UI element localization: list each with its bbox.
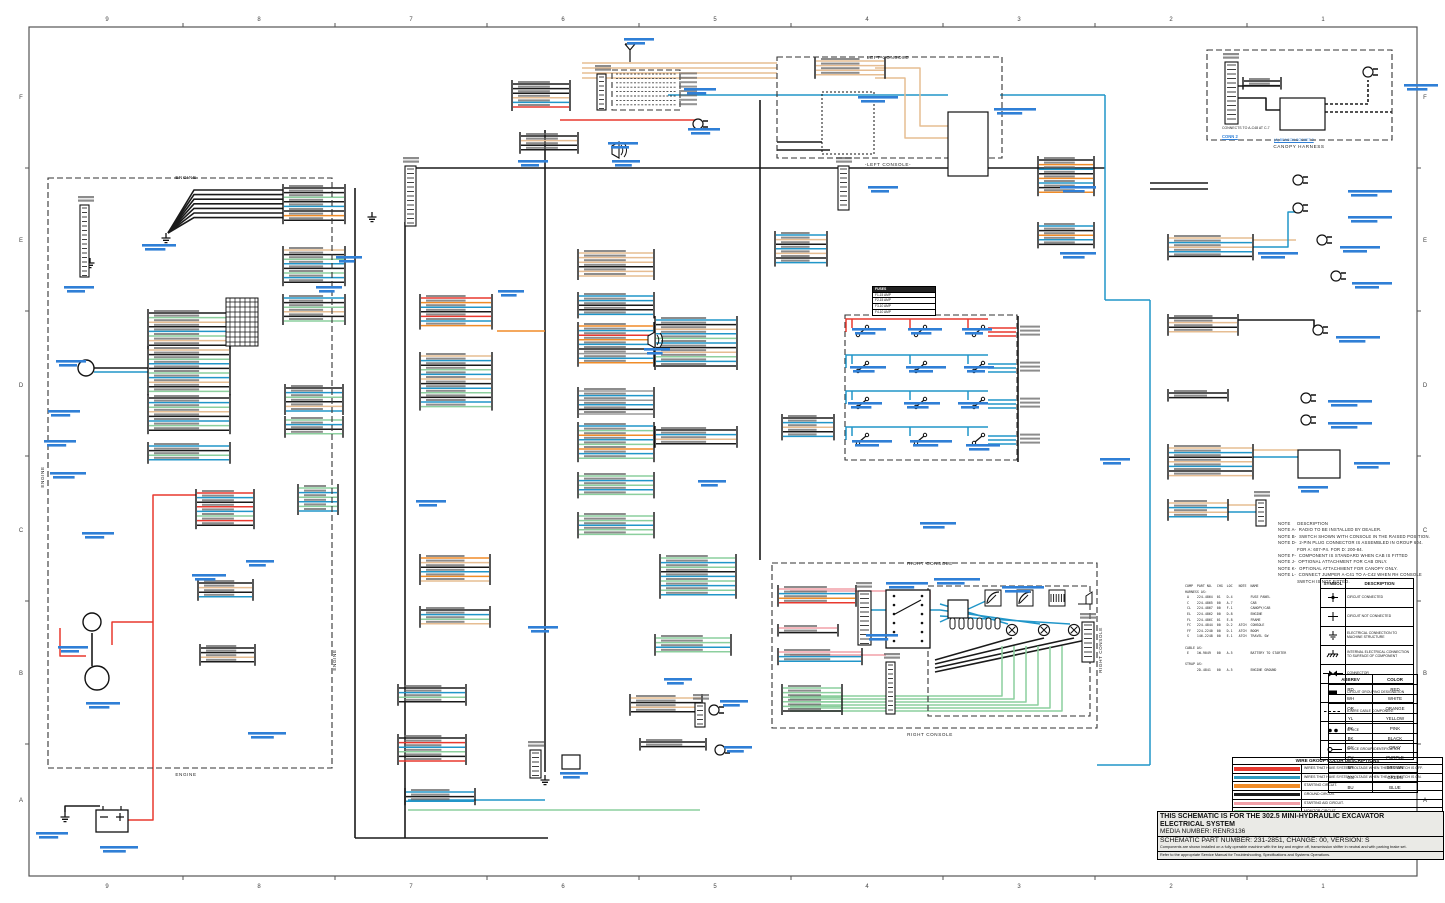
wire-label — [154, 395, 199, 397]
wire-label — [1174, 505, 1207, 507]
component-link[interactable] — [1100, 458, 1130, 461]
plug-prongs — [1341, 273, 1346, 279]
wire-label — [154, 409, 199, 411]
wire-label — [426, 353, 466, 355]
component-link[interactable] — [1328, 422, 1372, 425]
component-link[interactable] — [100, 846, 138, 849]
component-link[interactable] — [667, 682, 684, 685]
wire-label — [666, 573, 708, 575]
component-link[interactable] — [1354, 462, 1390, 465]
wire-label — [636, 695, 676, 697]
wire-label — [291, 422, 323, 424]
component-link[interactable] — [246, 560, 274, 563]
component-link[interactable] — [1328, 400, 1372, 403]
symbol-description: CIRCUIT CONNECTED — [1346, 588, 1414, 607]
component-link[interactable] — [937, 582, 965, 585]
wire-label — [1020, 434, 1040, 436]
wire-label — [584, 437, 626, 439]
component-link[interactable] — [908, 328, 942, 331]
symbol-table-row: CIRCUIT NOT CONNECTED — [1321, 607, 1414, 626]
component-link[interactable] — [56, 360, 86, 363]
wire-label — [788, 433, 817, 435]
wire-label — [291, 408, 323, 410]
wire-label — [426, 367, 466, 369]
pin-connector — [597, 74, 606, 110]
wire-label — [584, 428, 626, 430]
component-link[interactable] — [858, 96, 898, 99]
connector-name — [528, 741, 544, 743]
wire-label — [154, 404, 199, 406]
plug-prongs — [1311, 395, 1316, 401]
abbrev-code: YL — [1329, 714, 1373, 724]
component-link[interactable] — [1351, 220, 1377, 223]
component-link[interactable] — [145, 248, 165, 251]
component-link[interactable] — [518, 160, 548, 163]
wire-label — [784, 630, 817, 632]
wire-label — [518, 99, 550, 101]
component-link[interactable] — [192, 574, 226, 577]
component-link[interactable] — [687, 92, 706, 95]
component-link[interactable] — [923, 526, 945, 529]
component-link[interactable] — [103, 850, 126, 853]
wire-group-description: WIRES THAT HAVE SYSTEM VOLTAGE WHEN THE … — [1302, 765, 1443, 774]
wire-label — [1044, 162, 1075, 164]
wire-label — [154, 418, 199, 420]
component-link[interactable] — [61, 650, 79, 653]
component-link[interactable] — [1357, 466, 1379, 469]
component-link[interactable] — [47, 444, 66, 447]
component-link[interactable] — [1355, 286, 1379, 289]
abbrev-color: ORANGE — [1373, 704, 1418, 714]
component-link[interactable] — [997, 112, 1022, 115]
component-link[interactable] — [853, 370, 875, 373]
wire-label — [1020, 366, 1040, 368]
component-link[interactable] — [195, 578, 215, 581]
component-link[interactable] — [316, 286, 342, 289]
component-link[interactable] — [89, 706, 109, 709]
wire-label — [291, 390, 323, 392]
component-link[interactable] — [50, 472, 86, 475]
wire-label — [304, 490, 326, 492]
wire-label — [584, 332, 626, 334]
component-link[interactable] — [969, 448, 989, 451]
component-link[interactable] — [53, 476, 75, 479]
wire-group-description: STARTING CIRCUIT. — [1302, 782, 1443, 791]
component-link[interactable] — [560, 772, 588, 775]
component-link[interactable] — [967, 370, 985, 373]
abbrev-row: RD RED — [1329, 684, 1418, 694]
component-link[interactable] — [920, 522, 956, 525]
component-link[interactable] — [1103, 462, 1121, 465]
component-link[interactable] — [1339, 340, 1365, 343]
component-link[interactable] — [869, 638, 888, 641]
grid-column-label: 2 — [1169, 884, 1173, 890]
wire-run — [935, 640, 1086, 672]
wire-label — [584, 355, 626, 357]
wire-label — [784, 649, 830, 651]
component-link[interactable] — [67, 290, 85, 293]
wire-label — [426, 394, 466, 396]
wire-label — [202, 518, 234, 520]
grid-row-label: B — [19, 671, 23, 677]
component-link[interactable] — [848, 402, 882, 405]
component-link[interactable] — [909, 370, 933, 373]
component-link[interactable] — [251, 736, 274, 739]
component-link[interactable] — [64, 286, 94, 289]
component-link[interactable] — [961, 406, 979, 409]
wire-label — [289, 194, 323, 196]
component-link[interactable] — [850, 366, 886, 369]
switch-contact — [921, 640, 924, 643]
component-link[interactable] — [615, 164, 632, 167]
speaker-icon — [648, 332, 655, 348]
wire-label — [289, 304, 323, 306]
component-link[interactable] — [684, 88, 716, 91]
wire-label — [1174, 235, 1221, 237]
component-link[interactable] — [1002, 586, 1044, 589]
wire-label — [426, 404, 466, 406]
component-link[interactable] — [1331, 404, 1357, 407]
schematic-part-number: SCHEMATIC PART NUMBER: 231-2851, CHANGE:… — [1158, 836, 1443, 845]
wire-label — [154, 361, 199, 363]
component-link[interactable] — [871, 190, 889, 193]
component-link[interactable] — [86, 702, 120, 705]
component-link[interactable] — [664, 678, 692, 681]
region-label-engine: ENGINE — [40, 466, 45, 487]
component-link[interactable] — [852, 328, 886, 331]
grid-column-label: 7 — [409, 17, 413, 23]
component-link[interactable] — [964, 366, 994, 369]
wire-label — [661, 635, 703, 637]
symbol-table-row: ELECTRICAL CONNECTION TO MACHINE STRUCTU… — [1321, 626, 1414, 645]
wire-label — [666, 569, 708, 571]
component-link[interactable] — [521, 164, 539, 167]
component-link[interactable] — [1060, 252, 1096, 255]
wire-label — [584, 302, 626, 304]
wire-label — [584, 255, 626, 257]
component-link[interactable] — [336, 256, 362, 259]
wire-label — [202, 522, 234, 524]
component-link[interactable] — [698, 480, 726, 483]
component-link[interactable] — [51, 414, 70, 417]
schematic-sheet: { "sheet": { "grid_columns": ["9","8","7… — [0, 0, 1445, 903]
symbol-table-header-description: DESCRIPTION — [1346, 579, 1414, 589]
wire-run — [65, 806, 100, 812]
wire-label — [154, 365, 199, 367]
wire-label — [646, 739, 682, 741]
component-link[interactable] — [85, 536, 104, 539]
component-link[interactable] — [720, 700, 748, 703]
component-link[interactable] — [44, 440, 76, 443]
component-link[interactable] — [36, 832, 68, 835]
abbrev-code: RD — [1329, 684, 1373, 694]
abbrev-header: ABBREV — [1329, 675, 1373, 685]
wire-label — [154, 452, 199, 454]
wire-label — [1020, 402, 1040, 404]
connector-name — [403, 161, 419, 163]
component-link[interactable] — [855, 332, 875, 335]
component-link[interactable] — [1261, 256, 1285, 259]
connector-name — [595, 65, 611, 67]
key-switch — [886, 590, 930, 648]
wire-label — [426, 300, 466, 302]
component-link[interactable] — [886, 582, 928, 585]
wire-label — [661, 331, 706, 333]
wire-group-row: WIRES THAT HAVE SYSTEM VOLTAGE WHEN THE … — [1233, 765, 1443, 774]
wire-color-swatch — [1233, 773, 1302, 782]
component-link[interactable] — [691, 132, 710, 135]
wire-group-description: STARTING AID CIRCUIT. — [1302, 799, 1443, 808]
component-link[interactable] — [419, 504, 437, 507]
wire-label — [289, 300, 323, 302]
wire-label — [1044, 180, 1075, 182]
abbrev-code: PK — [1329, 723, 1373, 733]
wire-label — [289, 252, 323, 254]
component-link[interactable] — [531, 630, 549, 633]
component-link[interactable] — [1404, 84, 1438, 87]
component-link[interactable] — [904, 402, 940, 405]
wire-label — [1020, 398, 1040, 400]
component-link[interactable] — [962, 328, 992, 331]
wire-label — [1044, 223, 1075, 225]
component-link[interactable] — [934, 578, 980, 581]
ground-icon — [61, 812, 70, 822]
wire-label — [661, 363, 706, 365]
component-link[interactable] — [249, 564, 266, 567]
component-link[interactable] — [608, 142, 638, 145]
plug-connector-icon — [1363, 67, 1373, 77]
component-link[interactable] — [1343, 250, 1367, 253]
component-link[interactable] — [1063, 256, 1085, 259]
component-link[interactable] — [1258, 252, 1298, 255]
component-link[interactable] — [1348, 190, 1392, 193]
grid-column-label: 7 — [409, 884, 413, 890]
component-link[interactable] — [248, 732, 286, 735]
component-link[interactable] — [644, 348, 670, 351]
component-link[interactable] — [994, 108, 1036, 111]
wire-label — [661, 335, 706, 337]
wire-label — [584, 298, 626, 300]
wire-label — [1020, 406, 1040, 408]
component-link[interactable] — [1407, 88, 1427, 91]
component-link[interactable] — [647, 352, 663, 355]
component-link[interactable] — [1348, 216, 1392, 219]
wire-label — [411, 794, 450, 796]
wire-label — [304, 508, 326, 510]
wire-label — [661, 441, 706, 443]
plug-prongs — [719, 707, 724, 713]
wire-label — [584, 346, 626, 348]
wire-label — [661, 649, 703, 651]
component-link[interactable] — [1005, 590, 1030, 593]
component-link[interactable] — [319, 290, 335, 293]
beacon-socket-link[interactable]: (A) BEACON SOCKET 2 — [1274, 138, 1314, 142]
wire-label — [154, 379, 199, 381]
component-link[interactable] — [563, 776, 580, 779]
component-link[interactable] — [1331, 426, 1357, 429]
circuit-connected-icon — [1321, 588, 1346, 607]
component-link[interactable] — [1336, 336, 1380, 339]
region-label-engine: ENGINE — [175, 175, 196, 180]
component-link[interactable] — [627, 42, 645, 45]
component-link[interactable] — [910, 440, 952, 443]
wire-label — [291, 394, 323, 396]
wire-label — [289, 213, 323, 215]
component-link[interactable] — [852, 440, 892, 443]
wire-label — [289, 190, 323, 192]
component-link[interactable] — [907, 406, 929, 409]
component-link[interactable] — [1301, 490, 1319, 493]
wire-color-swatch — [1233, 782, 1302, 791]
wire-label — [526, 133, 558, 135]
component-link[interactable] — [958, 402, 988, 405]
wire-label — [679, 81, 697, 83]
connector-name — [884, 657, 900, 659]
component-link[interactable] — [1063, 190, 1085, 193]
wire-run — [112, 622, 153, 645]
abbrev-color: PINK — [1373, 723, 1418, 733]
plug-connector-icon — [715, 745, 725, 755]
component-link[interactable] — [339, 260, 355, 263]
switch-contact — [921, 622, 924, 625]
region-label-engine: ENGINE — [332, 649, 337, 670]
wire-label — [661, 317, 706, 319]
component-link[interactable] — [861, 100, 885, 103]
wire-label — [1249, 83, 1270, 85]
indicator-lamp — [986, 618, 991, 629]
component-link[interactable] — [911, 332, 931, 335]
component-box — [1280, 98, 1325, 130]
component-link[interactable] — [866, 634, 898, 637]
plug-connector-icon — [1301, 393, 1311, 403]
connector-name — [856, 586, 872, 588]
wire-label — [661, 358, 706, 360]
component-link[interactable] — [1340, 246, 1380, 249]
component-ground-icon — [1321, 645, 1346, 664]
abbrev-color: GRAY — [1373, 743, 1418, 753]
wire-label — [1249, 78, 1270, 80]
wire-label — [661, 436, 706, 438]
wire-label — [666, 578, 708, 580]
component-link[interactable] — [1352, 282, 1392, 285]
wire-label — [154, 310, 199, 312]
component-link[interactable] — [965, 332, 983, 335]
wire-color-swatch — [1233, 765, 1302, 774]
grid-column-label: 4 — [865, 884, 869, 890]
wire-label — [291, 403, 323, 405]
wire-label — [788, 415, 817, 417]
wire-run — [1238, 98, 1280, 110]
wire-label — [821, 63, 860, 65]
wire-label — [784, 600, 827, 602]
wire-label — [289, 279, 323, 281]
wire-label — [426, 390, 466, 392]
wire-group-row: STARTING CIRCUIT. — [1233, 782, 1443, 791]
wire-group-row: GROUND CIRCUIT. — [1233, 790, 1443, 799]
component-link[interactable] — [39, 836, 58, 839]
component-link[interactable] — [966, 444, 1000, 447]
wire-label — [1174, 473, 1221, 475]
wire-label — [584, 341, 626, 343]
component-link[interactable] — [723, 704, 740, 707]
wire-label — [666, 587, 708, 589]
wire-label — [661, 345, 706, 347]
component-link[interactable] — [906, 366, 946, 369]
component-link[interactable] — [913, 444, 938, 447]
plug-connector-icon — [1293, 175, 1303, 185]
component-link[interactable] — [1298, 486, 1328, 489]
wire-label — [584, 432, 626, 434]
region-label-canopy_harness: CANOPY HARNESS — [1273, 144, 1324, 149]
component-link[interactable] — [611, 146, 629, 149]
wire-label — [584, 360, 626, 362]
region-label-left_console_bottom: -LEFT CONSOLE- — [865, 162, 911, 167]
component-link[interactable] — [624, 38, 654, 41]
wire-label — [584, 518, 626, 520]
wire-label — [666, 583, 708, 585]
wire-label — [584, 455, 626, 457]
wire-label — [584, 451, 626, 453]
component-link[interactable] — [855, 444, 879, 447]
component-link[interactable] — [416, 500, 446, 503]
wire-label — [584, 527, 626, 529]
indicator-lamp — [977, 618, 982, 629]
wire-label — [1174, 463, 1221, 465]
wire-label — [289, 247, 323, 249]
wire-label — [661, 432, 706, 434]
region-label-right_console: RIGHT CONSOLE — [907, 732, 953, 737]
wire-label — [1020, 334, 1040, 336]
component-link[interactable] — [1351, 194, 1377, 197]
connector-name — [693, 698, 709, 700]
component-link[interactable] — [688, 128, 720, 131]
wire-label — [584, 446, 626, 448]
component-link[interactable] — [612, 160, 640, 163]
wire-label — [781, 237, 810, 239]
component-link[interactable] — [498, 290, 524, 293]
component-link[interactable] — [48, 410, 80, 413]
symbol-table-row: CIRCUIT CONNECTED — [1321, 588, 1414, 607]
wire-label — [781, 260, 810, 262]
wire-label — [289, 318, 323, 320]
wire-label — [154, 427, 199, 429]
wire-label — [584, 323, 626, 325]
wire-label — [584, 397, 626, 399]
component-link[interactable] — [889, 586, 914, 589]
region-label-engine: ENGINE — [175, 772, 196, 777]
wire-label — [646, 744, 682, 746]
machine-ground-icon — [1321, 626, 1346, 645]
component-link[interactable] — [59, 364, 77, 367]
component-link[interactable] — [501, 294, 517, 297]
component-link[interactable] — [724, 746, 752, 749]
canopy-conn-link[interactable]: CONN 2 — [1222, 134, 1238, 139]
component-link[interactable] — [58, 646, 88, 649]
component-link[interactable] — [851, 406, 871, 409]
wire-label — [1174, 240, 1221, 242]
component-link[interactable] — [727, 750, 744, 753]
wire-run — [935, 638, 1074, 668]
component-link[interactable] — [868, 186, 898, 189]
plug-prongs — [703, 121, 708, 127]
component-link[interactable] — [142, 244, 176, 247]
wire-label — [202, 499, 234, 501]
component-link[interactable] — [528, 626, 558, 629]
component-link[interactable] — [701, 484, 718, 487]
symbol-table-row: INTERNAL ELECTRICAL CONNECTION TO SURFAC… — [1321, 645, 1414, 664]
component-link[interactable] — [1060, 186, 1096, 189]
component-link[interactable] — [82, 532, 114, 535]
